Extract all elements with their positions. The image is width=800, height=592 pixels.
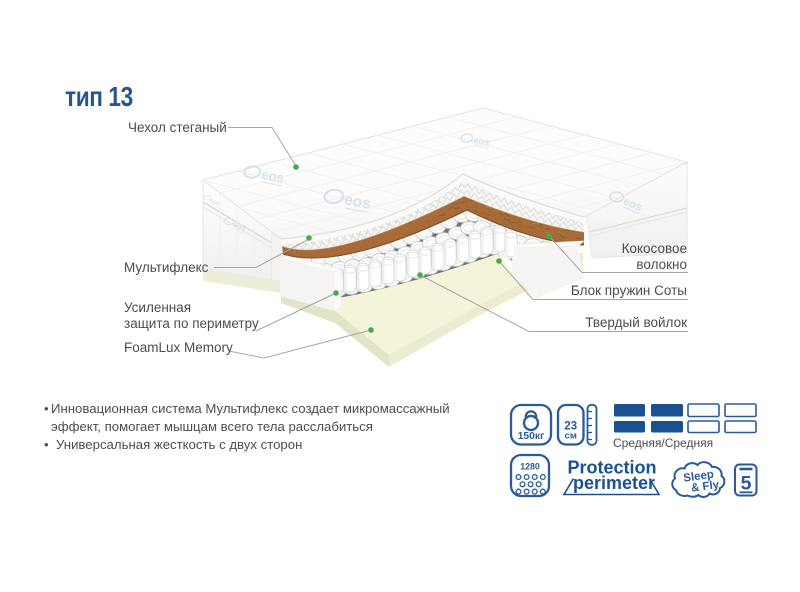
svg-text:perimeter: perimeter [573,473,655,493]
svg-text:5: 5 [741,473,752,495]
svg-text:см: см [565,431,577,442]
svg-text:150кг: 150кг [518,431,545,442]
svg-text:1280: 1280 [520,462,540,472]
